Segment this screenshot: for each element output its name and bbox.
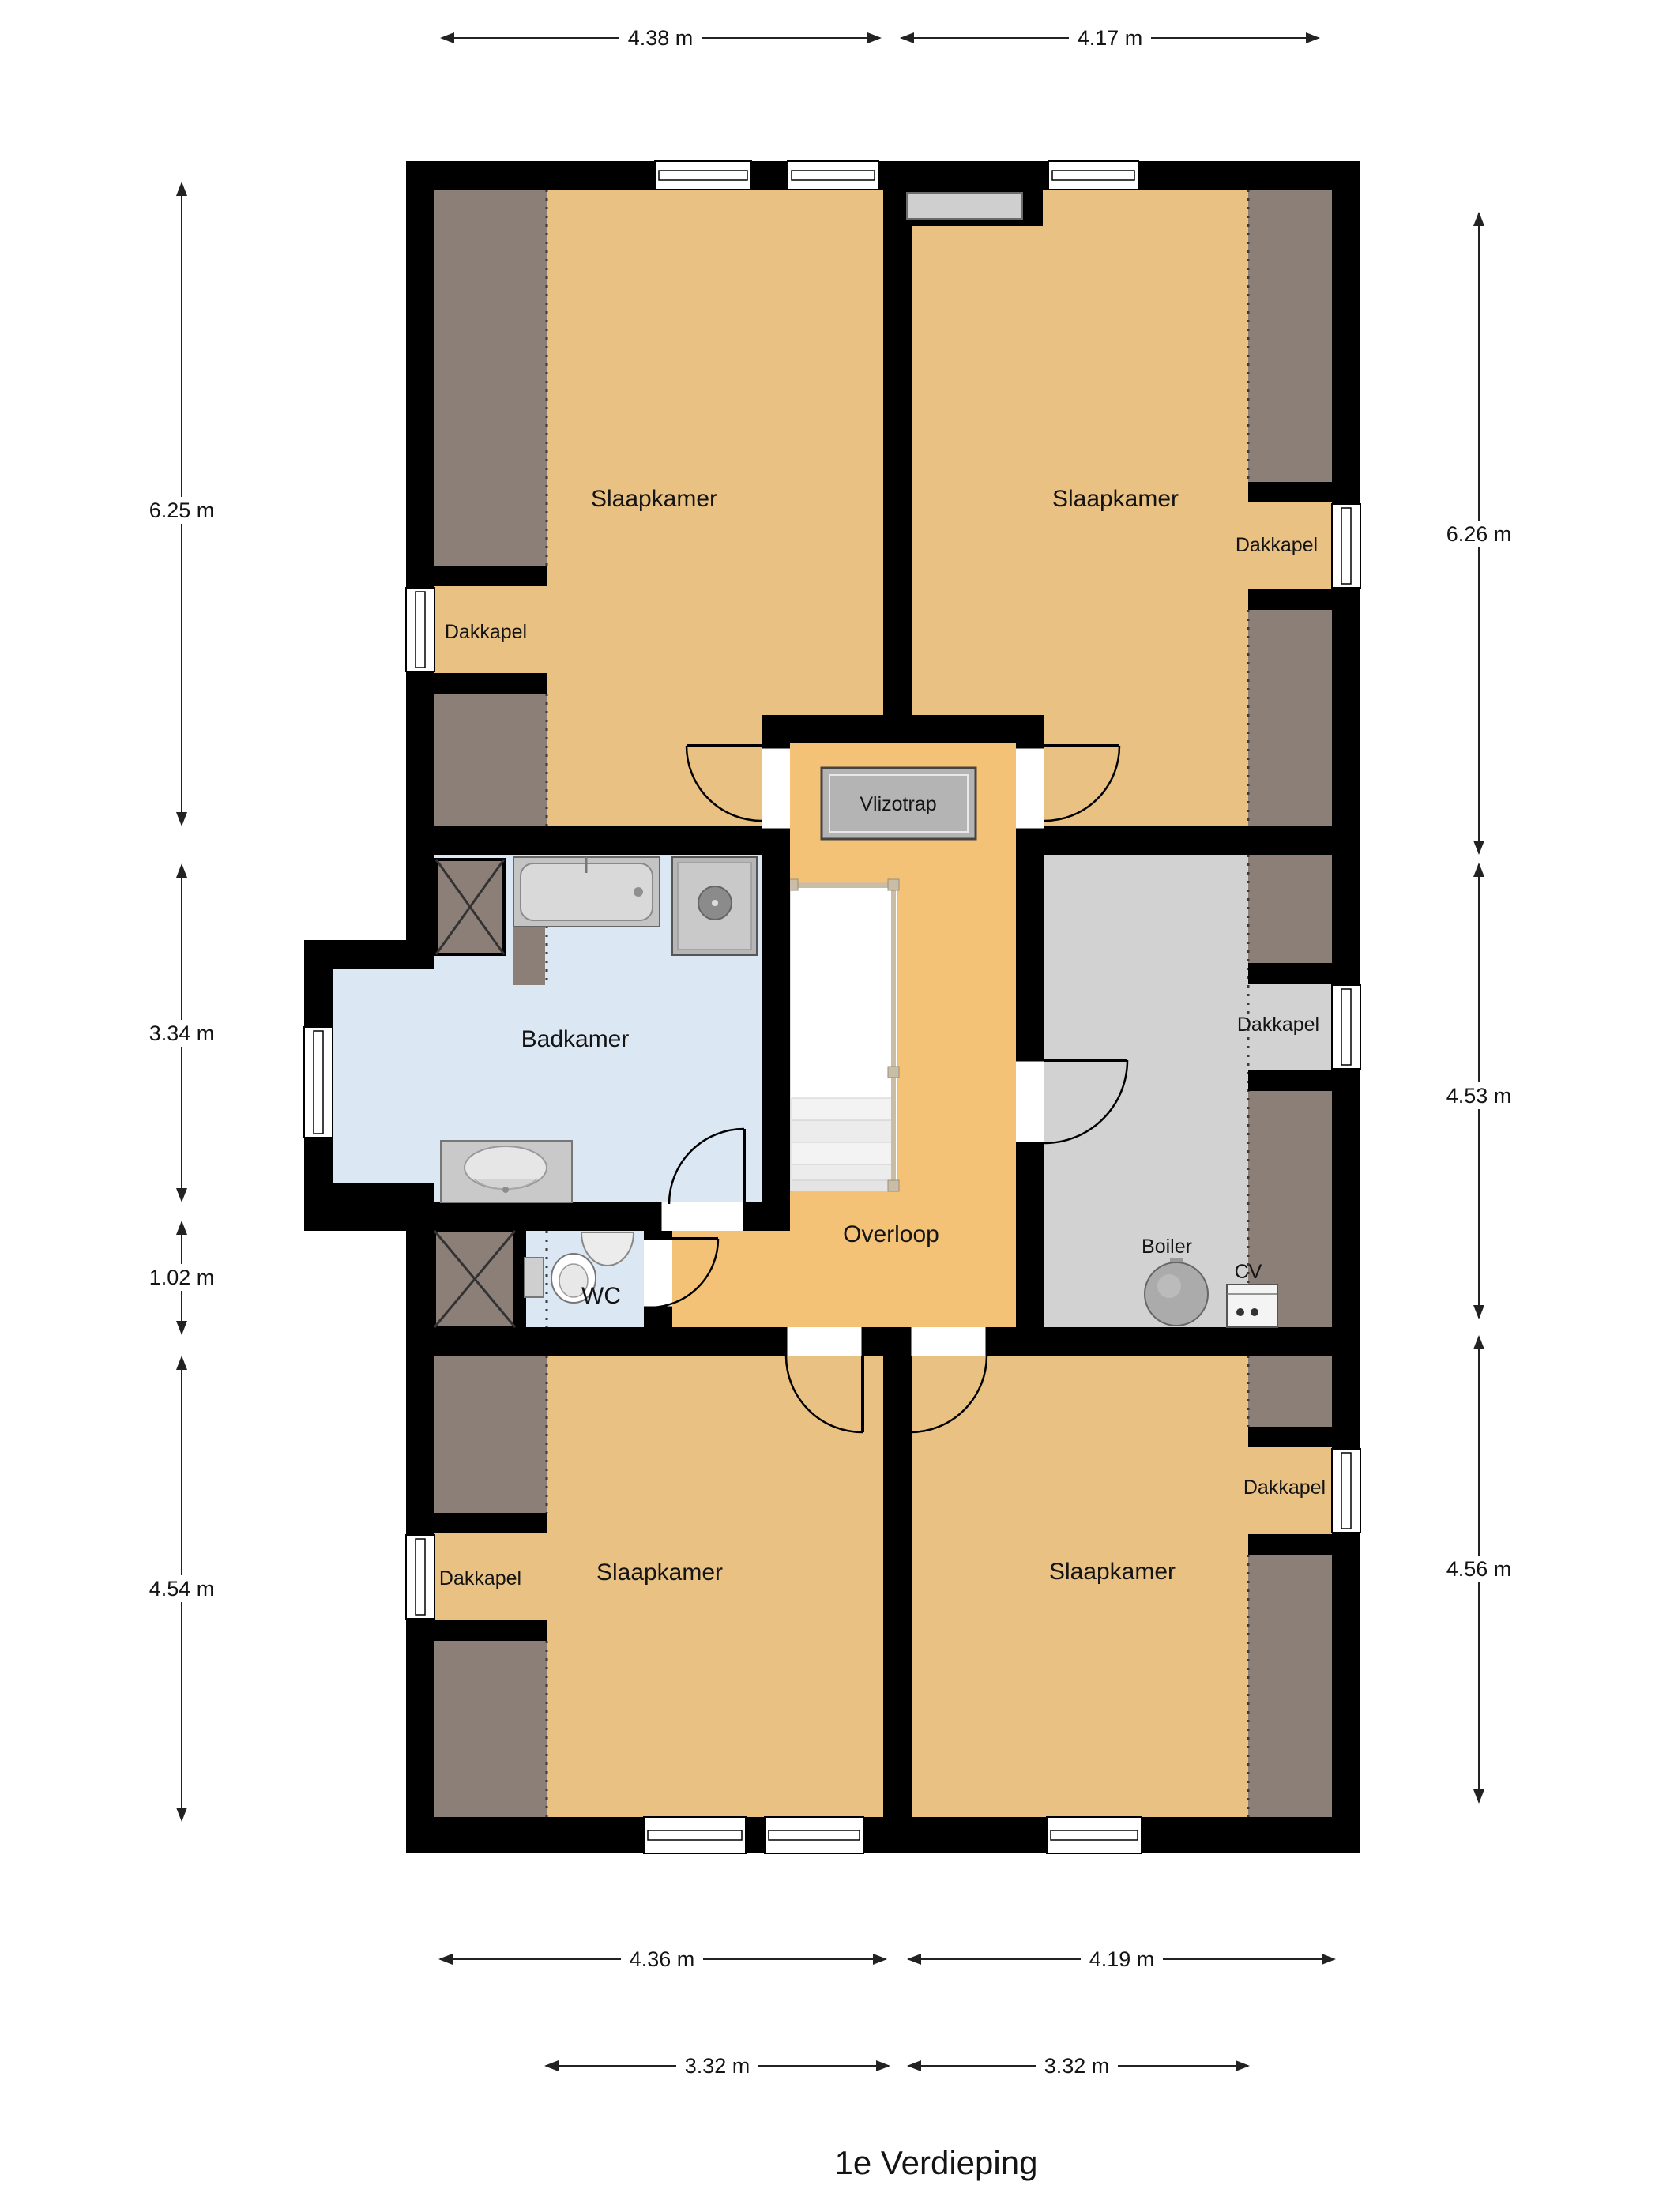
room-label-badkamer: Badkamer <box>521 1026 630 1052</box>
room-label-slaapkamer-top-left: Slaapkamer <box>591 486 717 512</box>
dim-top-2: 4.17 m <box>900 24 1320 51</box>
shower <box>672 857 757 955</box>
door-opening <box>644 1239 672 1307</box>
slope-badkamer-strip <box>513 926 545 985</box>
room-label-slaapkamer-bottom-left: Slaapkamer <box>596 1559 723 1586</box>
slope-bottom-left-lower <box>434 1641 547 1817</box>
door-opening <box>1016 1060 1044 1143</box>
railing-post <box>888 1066 899 1078</box>
slope-top-left-lower <box>434 694 547 826</box>
dim-left-4: 4.54 m <box>141 1356 223 1822</box>
room-label-slaapkamer-top-right: Slaapkamer <box>1052 486 1179 512</box>
dim-bottom-inner-1: 3.32 m <box>544 2052 890 2079</box>
window <box>406 588 434 671</box>
wall-bump-bottom <box>304 1183 434 1212</box>
wall-center-bottom <box>883 1327 912 1817</box>
wall-bedrooms-top <box>406 1327 1360 1356</box>
label-dakkapel-top-left: Dakkapel <box>445 621 527 643</box>
staircase <box>787 879 899 1191</box>
slope-top-right-lower <box>1248 610 1332 826</box>
svg-text:6.26 m: 6.26 m <box>1446 522 1512 546</box>
svg-text:4.38 m: 4.38 m <box>628 26 694 50</box>
railing-post <box>888 1180 899 1191</box>
label-dakkapel-top-right: Dakkapel <box>1236 534 1318 556</box>
label-dakkapel-storage: Dakkapel <box>1237 1014 1319 1036</box>
svg-text:4.17 m: 4.17 m <box>1078 26 1143 50</box>
window <box>1048 161 1138 190</box>
window <box>304 1027 333 1138</box>
window <box>765 1817 863 1853</box>
wall-storage-top <box>1016 826 1360 855</box>
stair-treads <box>792 1098 895 1191</box>
svg-text:3.32 m: 3.32 m <box>1044 2054 1110 2078</box>
svg-text:4.56 m: 4.56 m <box>1446 1557 1512 1581</box>
cv-unit <box>1227 1285 1277 1327</box>
label-cv: CV <box>1235 1261 1262 1283</box>
slope-storage-upper <box>1248 855 1332 963</box>
stub-dakkapel-tl-lower <box>406 673 547 694</box>
svg-text:3.34 m: 3.34 m <box>149 1021 215 1045</box>
dim-bottom-inner-2: 3.32 m <box>907 2052 1250 2079</box>
dim-top-1: 4.38 m <box>440 24 882 51</box>
shaft-box <box>436 860 504 954</box>
room-label-slaapkamer-bottom-right: Slaapkamer <box>1049 1559 1176 1585</box>
window <box>1332 1449 1360 1533</box>
shaft-box <box>434 1231 515 1327</box>
svg-text:4.54 m: 4.54 m <box>149 1577 215 1601</box>
room-label-overloop: Overloop <box>843 1221 939 1247</box>
window <box>1047 1817 1142 1853</box>
label-dakkapel-bottom-left: Dakkapel <box>439 1567 521 1589</box>
door-opening <box>1016 747 1044 829</box>
svg-text:4.53 m: 4.53 m <box>1446 1084 1512 1108</box>
room-floor-badkamer-bump <box>333 969 434 1183</box>
window <box>655 161 751 190</box>
svg-text:4.36 m: 4.36 m <box>630 1947 695 1971</box>
dim-left-1: 6.25 m <box>141 182 223 826</box>
floor-plan-page: { "title": "1e Verdieping", "plan": { "r… <box>0 0 1659 2212</box>
bathtub <box>513 857 660 927</box>
wall-badkamer-top <box>406 826 790 855</box>
dim-left-2: 3.34 m <box>141 863 223 1202</box>
room-floor-overloop-west <box>672 1231 799 1327</box>
wall-badkamer-right <box>762 855 790 1231</box>
wall-center-top <box>883 161 912 743</box>
slope-top-left-upper <box>434 190 547 566</box>
label-boiler: Boiler <box>1142 1236 1192 1258</box>
dim-bottom-outer-2: 4.19 m <box>907 1946 1336 1973</box>
stub-dakkapel-br-upper <box>1248 1427 1360 1447</box>
stub-dakkapel-storage-upper <box>1248 963 1360 984</box>
chimney-flue <box>907 193 1022 219</box>
door-opening <box>910 1327 987 1356</box>
stub-dakkapel-bl-lower <box>406 1620 547 1641</box>
stub-dakkapel-bl-upper <box>406 1513 547 1533</box>
slope-top-right-upper <box>1248 190 1332 482</box>
dim-right-1: 6.26 m <box>1438 212 1520 855</box>
dim-left-3: 1.02 m <box>141 1221 223 1335</box>
wall-storage-stub <box>1016 1262 1038 1327</box>
svg-text:6.25 m: 6.25 m <box>149 498 215 522</box>
stub-dakkapel-tr-upper <box>1248 482 1360 502</box>
wall-bottom <box>406 1817 1360 1853</box>
railing-post <box>888 879 899 890</box>
door-opening <box>786 1327 863 1356</box>
label-vlizotrap: Vlizotrap <box>860 793 936 815</box>
stub-dakkapel-tr-lower <box>1248 589 1360 610</box>
vanity-sink <box>441 1141 572 1202</box>
svg-text:1.02 m: 1.02 m <box>149 1266 215 1289</box>
stub-dakkapel-br-lower <box>1248 1534 1360 1555</box>
floor-plan-canvas: Slaapkamer Slaapkamer Badkamer WC Overlo… <box>0 0 1659 2212</box>
window <box>788 161 878 190</box>
stub-dakkapel-tl-upper <box>406 566 547 586</box>
slope-bottom-right-lower <box>1248 1555 1332 1817</box>
dim-bottom-outer-1: 4.36 m <box>438 1946 887 1973</box>
dim-right-2: 4.53 m <box>1438 863 1520 1319</box>
page-title: 1e Verdieping <box>835 2144 1038 2181</box>
dim-right-3: 4.56 m <box>1438 1335 1520 1804</box>
window <box>1332 985 1360 1069</box>
label-dakkapel-bottom-right: Dakkapel <box>1243 1477 1326 1499</box>
slope-bottom-right-upper <box>1248 1356 1332 1427</box>
svg-text:4.19 m: 4.19 m <box>1089 1947 1155 1971</box>
window <box>644 1817 746 1853</box>
window <box>1332 504 1360 588</box>
window <box>406 1535 434 1619</box>
room-label-wc: WC <box>581 1283 621 1309</box>
wall-hall-top <box>762 715 1044 743</box>
door-opening <box>762 747 790 829</box>
door-opening <box>660 1202 744 1231</box>
svg-text:3.32 m: 3.32 m <box>685 2054 750 2078</box>
stub-dakkapel-storage-lower <box>1248 1070 1360 1091</box>
slope-bottom-left-upper <box>434 1356 547 1513</box>
